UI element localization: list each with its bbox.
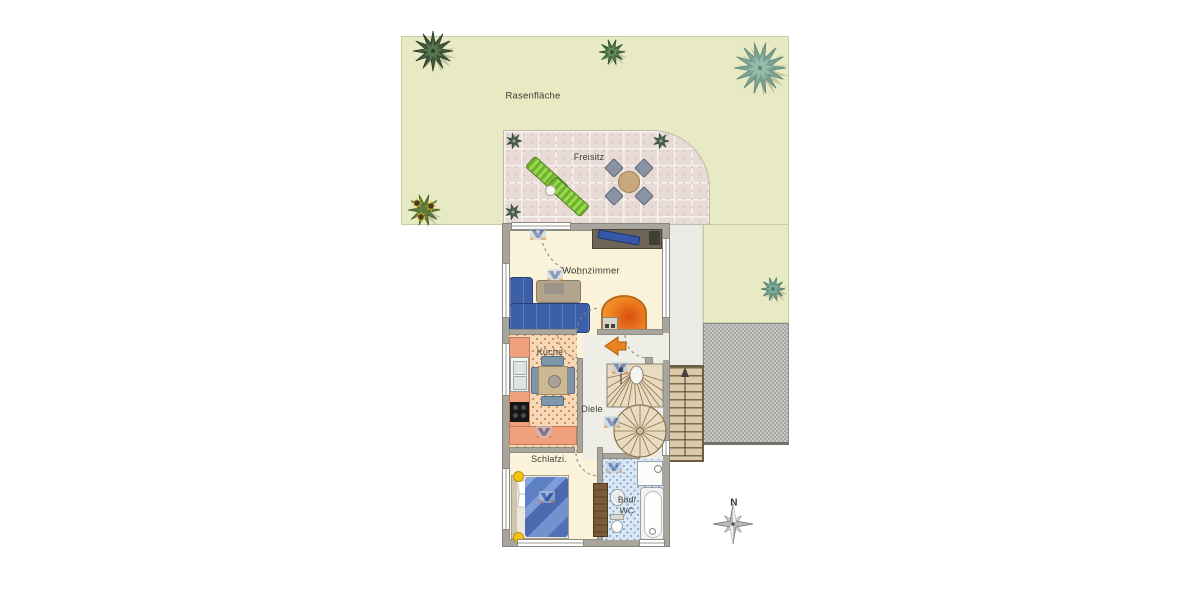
wall	[645, 357, 653, 364]
stove-icon	[510, 402, 529, 422]
compass-rose-icon	[713, 504, 753, 544]
kitchen-chair-icon	[541, 396, 564, 406]
exterior-stairs-icon	[668, 365, 704, 462]
wall	[597, 329, 663, 335]
table-item-icon	[548, 375, 561, 388]
entrance-opening	[663, 333, 669, 360]
window-icon	[502, 468, 510, 530]
garden-lawn-right-arm	[703, 225, 789, 323]
bed-icon	[511, 475, 569, 539]
burner-icon	[521, 413, 526, 418]
wall	[509, 447, 575, 453]
room-label-living: Wohnzimmer	[562, 266, 620, 277]
hall-floor	[583, 335, 663, 459]
headboard-icon	[512, 476, 517, 538]
floor-plan-canvas: Rasenfläche Freisitz	[0, 0, 1200, 600]
sink-basin-icon	[513, 376, 527, 390]
window-icon	[517, 539, 584, 547]
room-label-kitchen: Küche	[537, 347, 564, 357]
kitchen-counter	[509, 426, 577, 445]
room-label-hall: Diele	[581, 404, 603, 414]
window-icon	[639, 539, 665, 547]
window-icon	[502, 263, 510, 318]
shower-icon	[637, 461, 663, 486]
gravel-area	[703, 323, 789, 445]
drain-icon	[649, 528, 656, 535]
burner-icon	[521, 405, 526, 410]
sink-basin-icon	[513, 361, 527, 375]
bath-label-line1: Bad/	[618, 494, 636, 504]
patio	[503, 130, 710, 225]
hearth-door-icon	[611, 324, 615, 328]
patio-side-table-icon	[545, 185, 556, 196]
terrace-door-icon	[511, 222, 571, 230]
patio-label: Freisitz	[574, 152, 605, 162]
burner-icon	[513, 405, 518, 410]
wardrobe-icon	[593, 483, 608, 537]
kitchen-chair-icon	[541, 356, 564, 366]
patio-table-icon	[618, 171, 640, 193]
window-icon	[502, 343, 510, 396]
sink-icon	[510, 357, 529, 392]
shower-head-icon	[654, 465, 662, 473]
table-tray-icon	[544, 283, 564, 294]
bathtub-icon	[640, 487, 664, 541]
kitchen-table-icon	[538, 366, 568, 395]
sideboard-box-icon	[649, 231, 660, 245]
garden-label: Rasenfläche	[505, 91, 560, 102]
lamp-icon	[513, 471, 524, 482]
room-label-bedroom: Schlafzi.	[531, 454, 567, 464]
compass-north-label: N	[730, 498, 737, 509]
window-icon	[662, 440, 670, 456]
burner-icon	[513, 413, 518, 418]
wall	[509, 329, 577, 335]
room-label-bath: Bad/ WC	[618, 494, 636, 515]
duvet-icon	[525, 477, 568, 537]
window-icon	[662, 238, 670, 318]
toilet-bowl-icon	[611, 520, 623, 533]
bath-label-line2: WC	[620, 505, 635, 515]
hearth-door-icon	[605, 324, 609, 328]
wall	[603, 453, 640, 459]
